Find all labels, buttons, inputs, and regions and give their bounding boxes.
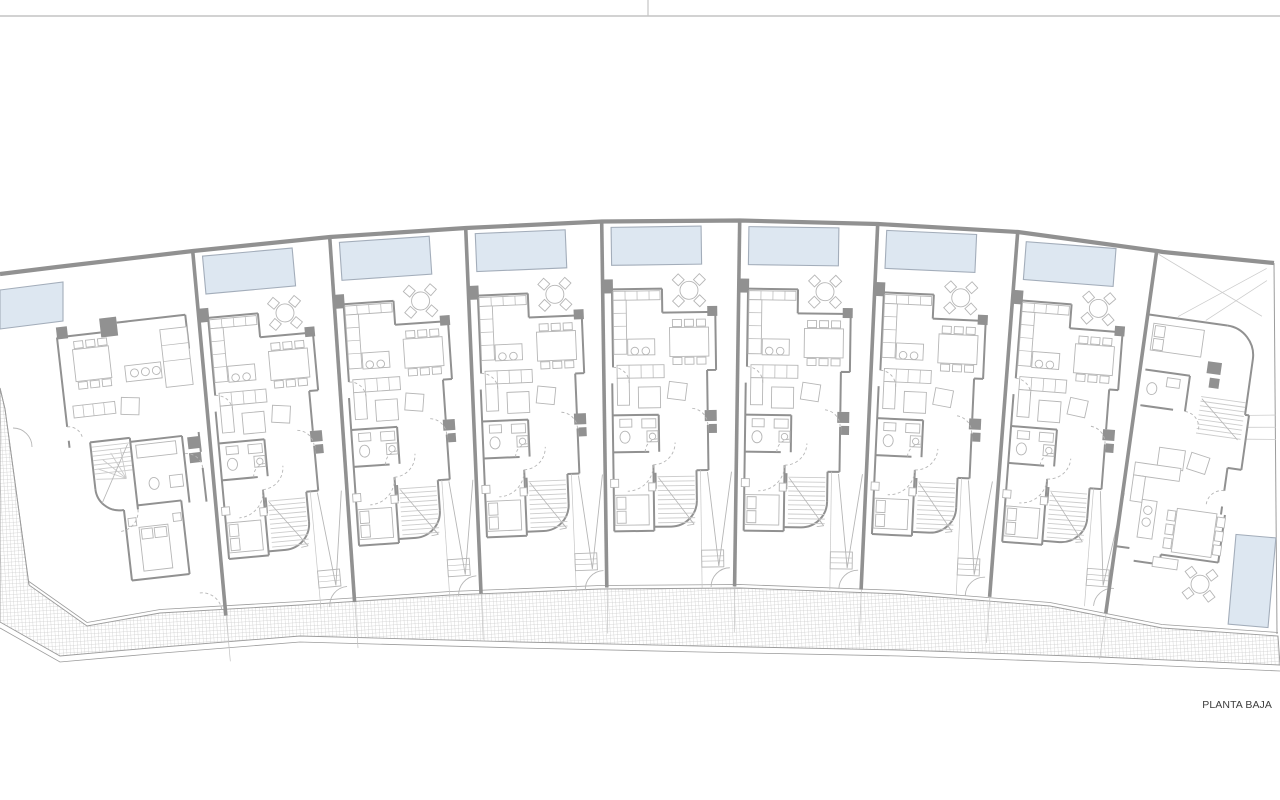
svg-text:PLANTA BAJA: PLANTA BAJA xyxy=(1202,699,1272,711)
